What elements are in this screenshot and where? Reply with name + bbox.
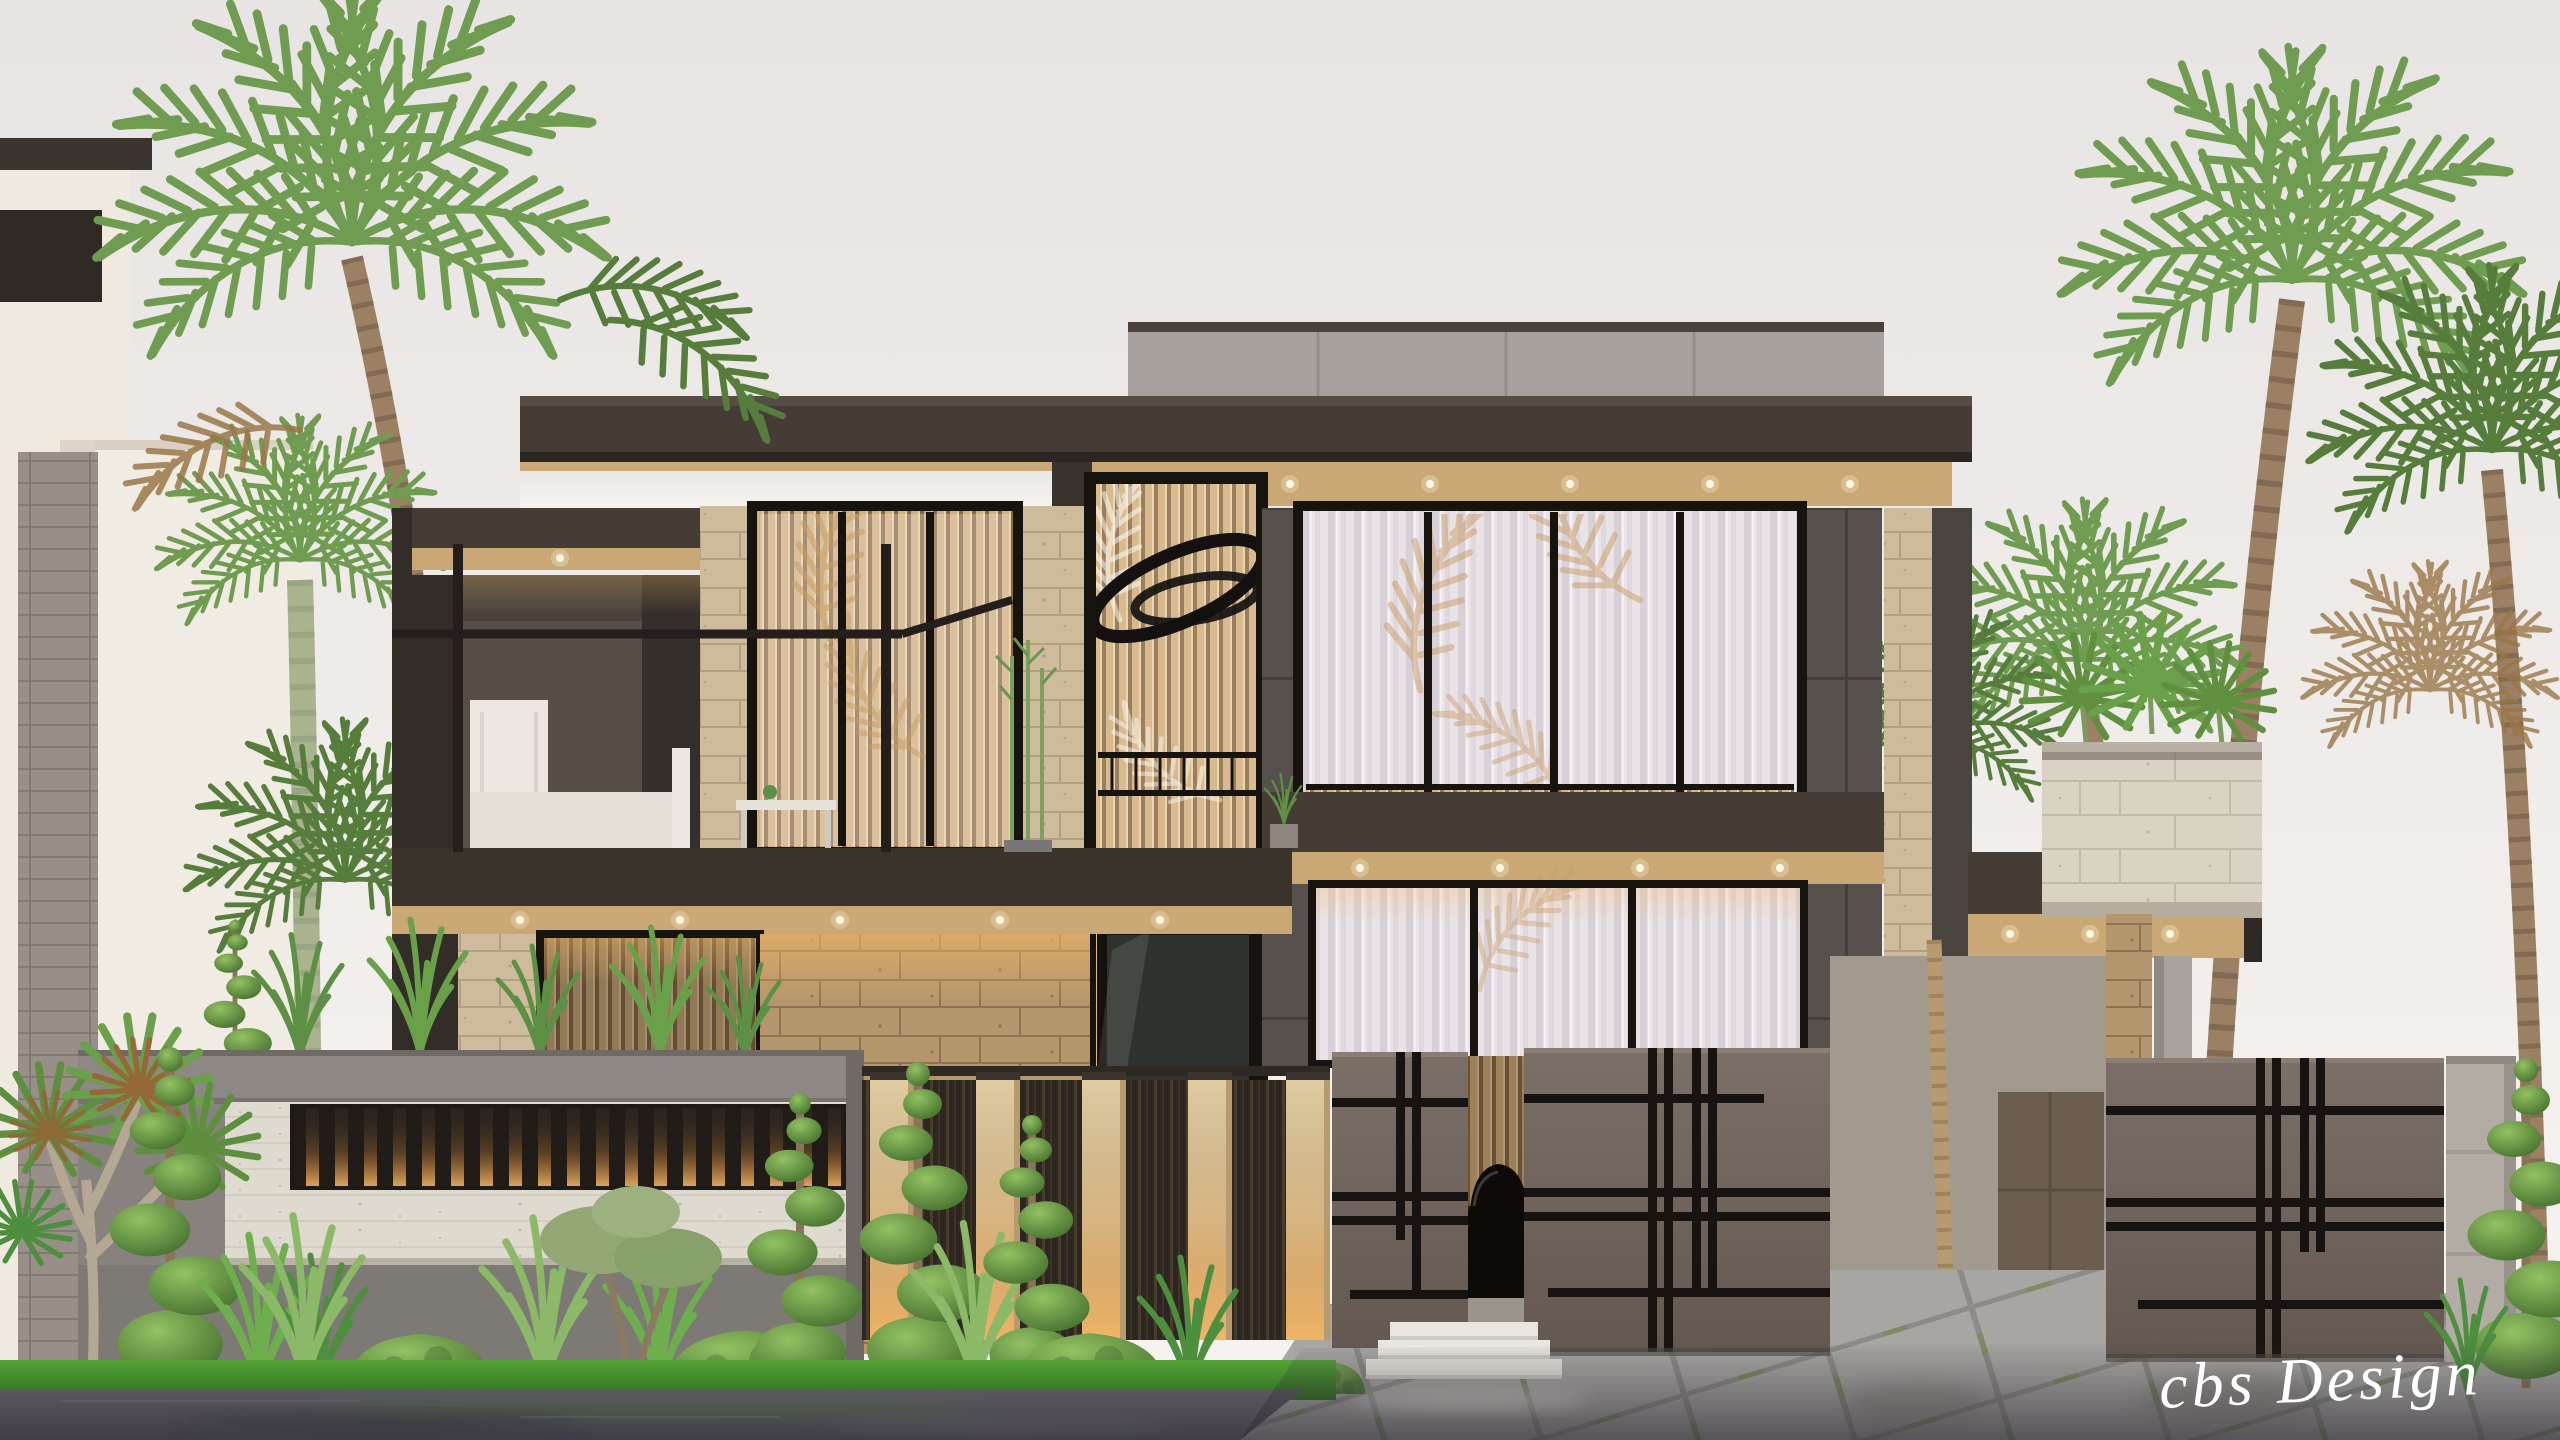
gate-left[interactable]	[1332, 1052, 1468, 1348]
right-floor-slab	[1262, 792, 1972, 884]
roof-fascia	[520, 396, 1972, 462]
entrance-bay	[1068, 459, 1284, 1100]
slot-wood-edge	[520, 462, 1072, 471]
gate-right[interactable]	[2106, 1058, 2444, 1362]
main-floor-slab	[392, 848, 1292, 934]
render-canvas: cbs Design	[0, 0, 2560, 1440]
gate-main[interactable]	[1524, 1048, 1830, 1356]
scene-svg: cbs Design	[0, 0, 2560, 1440]
watermark-text: cbs Design	[2158, 1337, 2483, 1422]
court-behind-gates	[1830, 940, 2106, 1308]
ground-right-window	[1312, 851, 1804, 1064]
wet-road	[0, 1390, 1302, 1440]
wall-slat-grille	[292, 1106, 846, 1188]
rooftop-parapet-box	[1128, 322, 1884, 402]
